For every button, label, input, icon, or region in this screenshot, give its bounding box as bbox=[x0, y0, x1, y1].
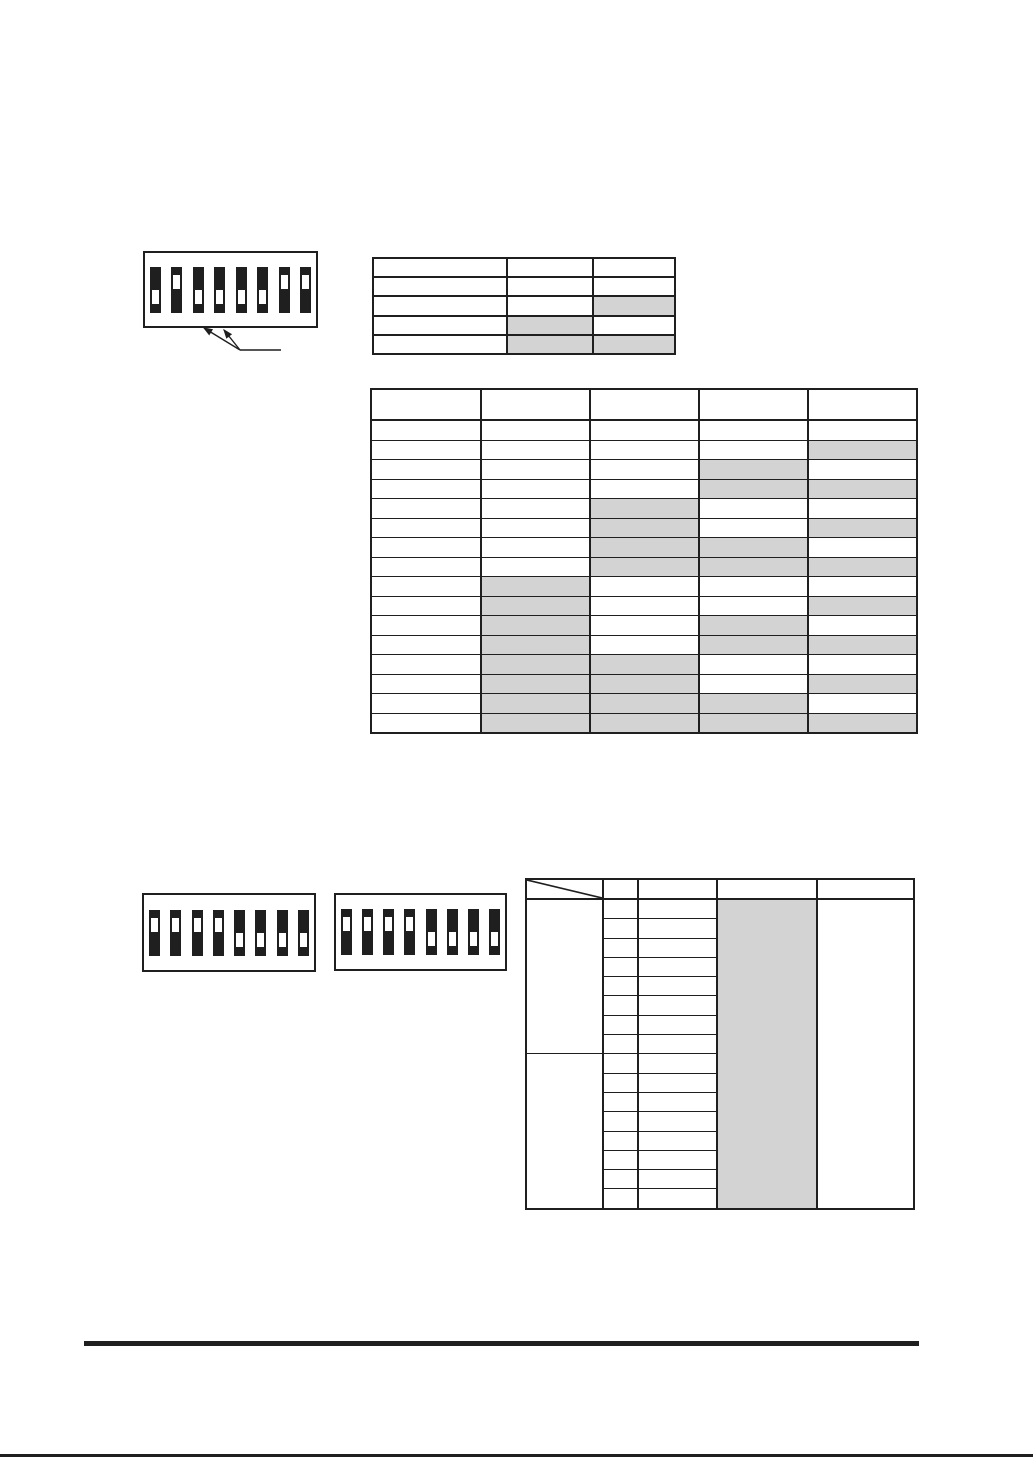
dip-switch-6 bbox=[255, 910, 266, 956]
legend-cell-r2-c1 bbox=[508, 297, 592, 314]
binary-cell-r11-c4 bbox=[809, 636, 916, 655]
matrix-cell-r6-c1 bbox=[604, 1016, 637, 1034]
dip-switch-8-slider-window bbox=[300, 933, 307, 947]
dip-switch-1 bbox=[341, 909, 352, 955]
dip-switch-7-slider-window bbox=[281, 275, 288, 289]
binary-cell-r11-c1 bbox=[482, 636, 589, 655]
legend-cell-r1-c1 bbox=[508, 278, 592, 295]
binary-cell-r12-c4 bbox=[809, 655, 916, 674]
dip-switch-8-slider-window bbox=[302, 275, 309, 289]
binary-cell-r6-c1 bbox=[482, 538, 589, 557]
matrix-cell-r14-c1 bbox=[604, 1170, 637, 1188]
binary-cell-r7-c0 bbox=[372, 558, 480, 577]
binary-cell-r4-c3 bbox=[700, 499, 807, 518]
dip-switch-3-slider-window bbox=[194, 918, 201, 932]
matrix-header-c2 bbox=[639, 880, 716, 899]
matrix-header-c3 bbox=[718, 880, 816, 899]
legend-cell-r0-c0 bbox=[374, 259, 506, 276]
binary-cell-r14-c0 bbox=[372, 694, 480, 713]
binary-cell-r1-c2 bbox=[591, 441, 698, 460]
dip-switch-3 bbox=[192, 910, 203, 956]
binary-combinations-table bbox=[370, 388, 918, 734]
binary-cell-r13-c2 bbox=[591, 675, 698, 694]
matrix-group-cell-2 bbox=[527, 1054, 602, 1207]
binary-cell-r0-c1 bbox=[482, 421, 589, 440]
dip-switch-7 bbox=[279, 267, 290, 313]
matrix-cell-r11-c1 bbox=[604, 1112, 637, 1130]
binary-cell-r13-c1 bbox=[482, 675, 589, 694]
binary-cell-r9-c2 bbox=[591, 597, 698, 616]
matrix-cell-r10-c2 bbox=[639, 1093, 716, 1111]
binary-cell-r11-c3 bbox=[700, 636, 807, 655]
binary-cell-r8-c0 bbox=[372, 577, 480, 596]
legend-cell-r4-c1 bbox=[508, 336, 592, 353]
binary-cell-r9-c1 bbox=[482, 597, 589, 616]
switch-legend-table bbox=[372, 257, 676, 355]
binary-cell-r13-c0 bbox=[372, 675, 480, 694]
binary-cell-r11-c2 bbox=[591, 636, 698, 655]
dip-switch-4 bbox=[214, 267, 225, 313]
dip-switch-4 bbox=[213, 910, 224, 956]
matrix-cell-r3-c2 bbox=[639, 958, 716, 976]
legend-cell-r0-c1 bbox=[508, 259, 592, 276]
legend-cell-r0-c2 bbox=[594, 259, 674, 276]
binary-cell-r1-c0 bbox=[372, 441, 480, 460]
dip-switch-7-slider-window bbox=[470, 932, 477, 946]
binary-cell-r3-c0 bbox=[372, 480, 480, 499]
dip-switch-1 bbox=[150, 267, 161, 313]
binary-cell-r4-c4 bbox=[809, 499, 916, 518]
dip-switch-8 bbox=[300, 267, 311, 313]
matrix-cell-r1-c2 bbox=[639, 919, 716, 937]
matrix-cell-r9-c1 bbox=[604, 1074, 637, 1092]
binary-cell-r1-c1 bbox=[482, 441, 589, 460]
matrix-group-cell-1 bbox=[527, 900, 602, 1053]
binary-cell-r1-c4 bbox=[809, 441, 916, 460]
binary-cell-r4-c0 bbox=[372, 499, 480, 518]
binary-cell-r12-c1 bbox=[482, 655, 589, 674]
dip-switch-8 bbox=[489, 909, 500, 955]
dip-switch-2 bbox=[362, 909, 373, 955]
binary-cell-r10-c1 bbox=[482, 616, 589, 635]
matrix-cell-r0-c2 bbox=[639, 900, 716, 918]
dip-switch-5 bbox=[236, 267, 247, 313]
binary-cell-r3-c2 bbox=[591, 480, 698, 499]
legend-cell-r1-c0 bbox=[374, 278, 506, 295]
address-matrix-table bbox=[525, 878, 915, 1210]
binary-cell-r3-c1 bbox=[482, 480, 589, 499]
binary-cell-r15-c1 bbox=[482, 714, 589, 733]
binary-cell-r10-c4 bbox=[809, 616, 916, 635]
binary-cell-r4-c2 bbox=[591, 499, 698, 518]
binary-cell-r3-c3 bbox=[700, 480, 807, 499]
binary-cell-r0-c4 bbox=[809, 421, 916, 440]
binary-cell-r2-c2 bbox=[591, 460, 698, 479]
binary-cell-r14-c4 bbox=[809, 694, 916, 713]
legend-cell-r4-c2 bbox=[594, 336, 674, 353]
binary-cell-r9-c4 bbox=[809, 597, 916, 616]
dip-switch-6-slider-window bbox=[259, 290, 266, 304]
binary-cell-r5-c3 bbox=[700, 519, 807, 538]
legend-cell-r4-c0 bbox=[374, 336, 506, 353]
binary-cell-r15-c0 bbox=[372, 714, 480, 733]
matrix-cell-r7-c2 bbox=[639, 1035, 716, 1053]
dip-switch-2-slider-window bbox=[364, 917, 371, 931]
matrix-header-c4 bbox=[818, 880, 913, 899]
binary-cell-r11-c0 bbox=[372, 636, 480, 655]
header-diagonal-line bbox=[527, 880, 602, 898]
binary-cell-r0-c0 bbox=[372, 421, 480, 440]
binary-cell-r14-c3 bbox=[700, 694, 807, 713]
dip-switch-4 bbox=[404, 909, 415, 955]
binary-cell-r10-c2 bbox=[591, 616, 698, 635]
binary-cell-r12-c0 bbox=[372, 655, 480, 674]
matrix-cell-r13-c2 bbox=[639, 1151, 716, 1169]
binary-header-c2 bbox=[591, 390, 698, 420]
dip-switch-4-slider-window bbox=[216, 290, 223, 304]
dip-switch-4-slider-window bbox=[406, 917, 413, 931]
dip-switch-2 bbox=[170, 910, 181, 956]
matrix-cell-r4-c2 bbox=[639, 977, 716, 995]
dip-switch-2 bbox=[171, 267, 182, 313]
binary-cell-r5-c4 bbox=[809, 519, 916, 538]
matrix-cell-r2-c2 bbox=[639, 939, 716, 957]
binary-cell-r0-c3 bbox=[700, 421, 807, 440]
binary-cell-r8-c1 bbox=[482, 577, 589, 596]
binary-cell-r6-c4 bbox=[809, 538, 916, 557]
dip-switch-3-slider-window bbox=[195, 290, 202, 304]
matrix-cell-r12-c1 bbox=[604, 1132, 637, 1150]
binary-cell-r5-c1 bbox=[482, 519, 589, 538]
matrix-cell-r8-c2 bbox=[639, 1054, 716, 1072]
matrix-cell-r2-c1 bbox=[604, 939, 637, 957]
binary-cell-r14-c2 bbox=[591, 694, 698, 713]
binary-cell-r12-c3 bbox=[700, 655, 807, 674]
matrix-cell-r7-c1 bbox=[604, 1035, 637, 1053]
binary-cell-r2-c4 bbox=[809, 460, 916, 479]
binary-cell-r1-c3 bbox=[700, 441, 807, 460]
binary-cell-r9-c0 bbox=[372, 597, 480, 616]
legend-cell-r2-c2 bbox=[594, 297, 674, 314]
binary-cell-r6-c2 bbox=[591, 538, 698, 557]
binary-cell-r7-c1 bbox=[482, 558, 589, 577]
dip-block-bottom-b bbox=[334, 893, 507, 971]
matrix-cell-r9-c2 bbox=[639, 1074, 716, 1092]
binary-cell-r0-c2 bbox=[591, 421, 698, 440]
dip-switch-3 bbox=[193, 267, 204, 313]
binary-cell-r12-c2 bbox=[591, 655, 698, 674]
dip-switch-7 bbox=[277, 910, 288, 956]
callout-arrows bbox=[190, 316, 290, 360]
matrix-header-c1 bbox=[604, 880, 637, 899]
page: { "document": { "kind": "scanned-manual-… bbox=[0, 0, 1033, 1458]
matrix-header-c0 bbox=[527, 880, 602, 899]
matrix-cell-r14-c2 bbox=[639, 1170, 716, 1188]
dip-switch-8 bbox=[298, 910, 309, 956]
binary-cell-r2-c1 bbox=[482, 460, 589, 479]
binary-cell-r10-c0 bbox=[372, 616, 480, 635]
legend-cell-r3-c1 bbox=[508, 317, 592, 334]
binary-cell-r7-c2 bbox=[591, 558, 698, 577]
dip-switch-2-slider-window bbox=[172, 918, 179, 932]
binary-cell-r8-c3 bbox=[700, 577, 807, 596]
dip-switch-1-slider-window bbox=[343, 917, 350, 931]
dip-switch-4-slider-window bbox=[215, 918, 222, 932]
dip-switch-5 bbox=[426, 909, 437, 955]
binary-cell-r5-c2 bbox=[591, 519, 698, 538]
matrix-shaded-column bbox=[718, 900, 816, 1208]
binary-cell-r15-c3 bbox=[700, 714, 807, 733]
dip-switch-1-slider-window bbox=[152, 290, 159, 304]
legend-cell-r1-c2 bbox=[594, 278, 674, 295]
binary-cell-r15-c2 bbox=[591, 714, 698, 733]
matrix-cell-r5-c2 bbox=[639, 996, 716, 1014]
binary-header-c0 bbox=[372, 390, 480, 420]
matrix-cell-r13-c1 bbox=[604, 1151, 637, 1169]
dip-switch-3 bbox=[383, 909, 394, 955]
binary-cell-r10-c3 bbox=[700, 616, 807, 635]
callout-arrow-left bbox=[204, 328, 240, 350]
dip-switch-5-slider-window bbox=[238, 290, 245, 304]
footer-rule bbox=[84, 1341, 919, 1346]
binary-cell-r9-c3 bbox=[700, 597, 807, 616]
binary-cell-r3-c4 bbox=[809, 480, 916, 499]
dip-switch-7-slider-window bbox=[279, 933, 286, 947]
matrix-cell-r15-c1 bbox=[604, 1189, 637, 1207]
binary-cell-r2-c0 bbox=[372, 460, 480, 479]
dip-switch-6 bbox=[257, 267, 268, 313]
dip-switch-5-slider-window bbox=[236, 933, 243, 947]
matrix-cell-r5-c1 bbox=[604, 996, 637, 1014]
dip-switch-5 bbox=[234, 910, 245, 956]
matrix-cell-r8-c1 bbox=[604, 1054, 637, 1072]
dip-switch-3-slider-window bbox=[385, 917, 392, 931]
binary-cell-r6-c3 bbox=[700, 538, 807, 557]
dip-switch-2-slider-window bbox=[173, 275, 180, 289]
binary-header-c3 bbox=[700, 390, 807, 420]
binary-cell-r8-c2 bbox=[591, 577, 698, 596]
dip-switch-6-slider-window bbox=[449, 932, 456, 946]
dip-switch-7 bbox=[468, 909, 479, 955]
dip-switch-8-slider-window bbox=[491, 932, 498, 946]
matrix-cell-r6-c2 bbox=[639, 1016, 716, 1034]
callout-arrow-right bbox=[224, 330, 240, 350]
legend-cell-r2-c0 bbox=[374, 297, 506, 314]
binary-cell-r6-c0 bbox=[372, 538, 480, 557]
dip-block-bottom-a bbox=[142, 893, 316, 972]
legend-cell-r3-c2 bbox=[594, 317, 674, 334]
matrix-cell-r4-c1 bbox=[604, 977, 637, 995]
dip-switch-6 bbox=[447, 909, 458, 955]
matrix-cell-r3-c1 bbox=[604, 958, 637, 976]
binary-cell-r13-c4 bbox=[809, 675, 916, 694]
binary-cell-r13-c3 bbox=[700, 675, 807, 694]
page-bottom-edge-line bbox=[0, 1454, 1033, 1457]
matrix-cell-r11-c2 bbox=[639, 1112, 716, 1130]
binary-cell-r14-c1 bbox=[482, 694, 589, 713]
binary-header-c4 bbox=[809, 390, 916, 420]
matrix-cell-r12-c2 bbox=[639, 1132, 716, 1150]
binary-header-c1 bbox=[482, 390, 589, 420]
binary-cell-r15-c4 bbox=[809, 714, 916, 733]
dip-switch-1-slider-window bbox=[151, 918, 158, 932]
binary-cell-r2-c3 bbox=[700, 460, 807, 479]
binary-cell-r4-c1 bbox=[482, 499, 589, 518]
matrix-cell-r1-c1 bbox=[604, 919, 637, 937]
dip-switch-6-slider-window bbox=[257, 933, 264, 947]
binary-cell-r5-c0 bbox=[372, 519, 480, 538]
matrix-cell-r10-c1 bbox=[604, 1093, 637, 1111]
matrix-merged-last-column bbox=[818, 900, 913, 1208]
binary-cell-r8-c4 bbox=[809, 577, 916, 596]
matrix-cell-r15-c2 bbox=[639, 1189, 716, 1207]
legend-cell-r3-c0 bbox=[374, 317, 506, 334]
dip-switch-5-slider-window bbox=[428, 932, 435, 946]
binary-cell-r7-c3 bbox=[700, 558, 807, 577]
dip-switch-1 bbox=[149, 910, 160, 956]
matrix-cell-r0-c1 bbox=[604, 900, 637, 918]
binary-cell-r7-c4 bbox=[809, 558, 916, 577]
